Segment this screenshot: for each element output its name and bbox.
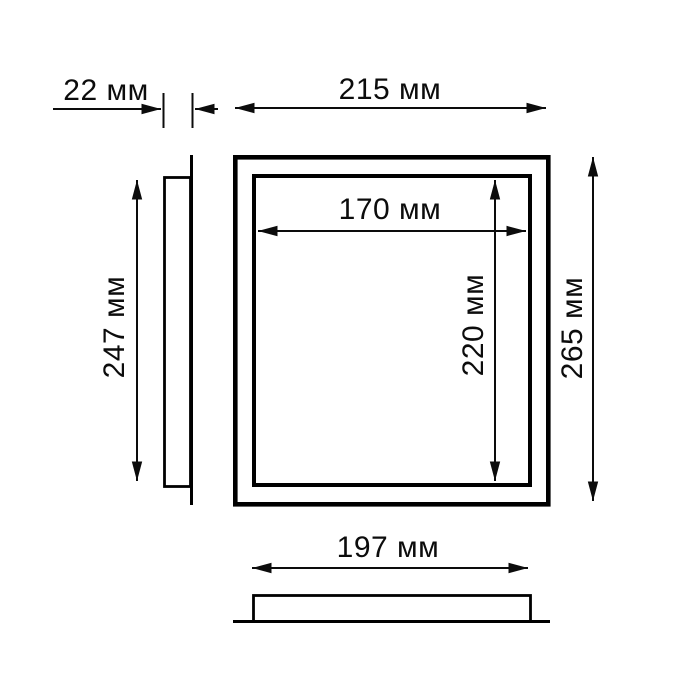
dimension-drawing-page: 22 мм 215 мм 170 мм 220 мм 265 мм 247 мм (0, 0, 700, 700)
bottom-view-body (254, 596, 531, 622)
dim-base-width: 197 мм (252, 531, 528, 568)
dim-side-height-label: 247 мм (98, 276, 131, 379)
dim-depth: 22 мм (53, 74, 218, 128)
bottom-view (233, 596, 550, 622)
dim-outer-width-label: 215 мм (339, 73, 442, 106)
dim-inner-width-label: 170 мм (339, 193, 442, 226)
dim-base-width-label: 197 мм (337, 531, 440, 564)
dim-outer-height: 265 мм (556, 157, 593, 501)
side-view-body (165, 178, 191, 487)
dim-depth-label: 22 мм (63, 74, 148, 107)
dim-outer-width: 215 мм (235, 73, 546, 108)
dim-outer-height-label: 265 мм (556, 277, 589, 380)
dim-inner-height: 220 мм (457, 180, 495, 481)
dim-inner-width: 170 мм (258, 193, 526, 231)
dim-inner-height-label: 220 мм (457, 274, 490, 377)
side-view (165, 155, 192, 505)
technical-drawing: 22 мм 215 мм 170 мм 220 мм 265 мм 247 мм (0, 0, 700, 700)
dim-side-height: 247 мм (98, 180, 137, 481)
